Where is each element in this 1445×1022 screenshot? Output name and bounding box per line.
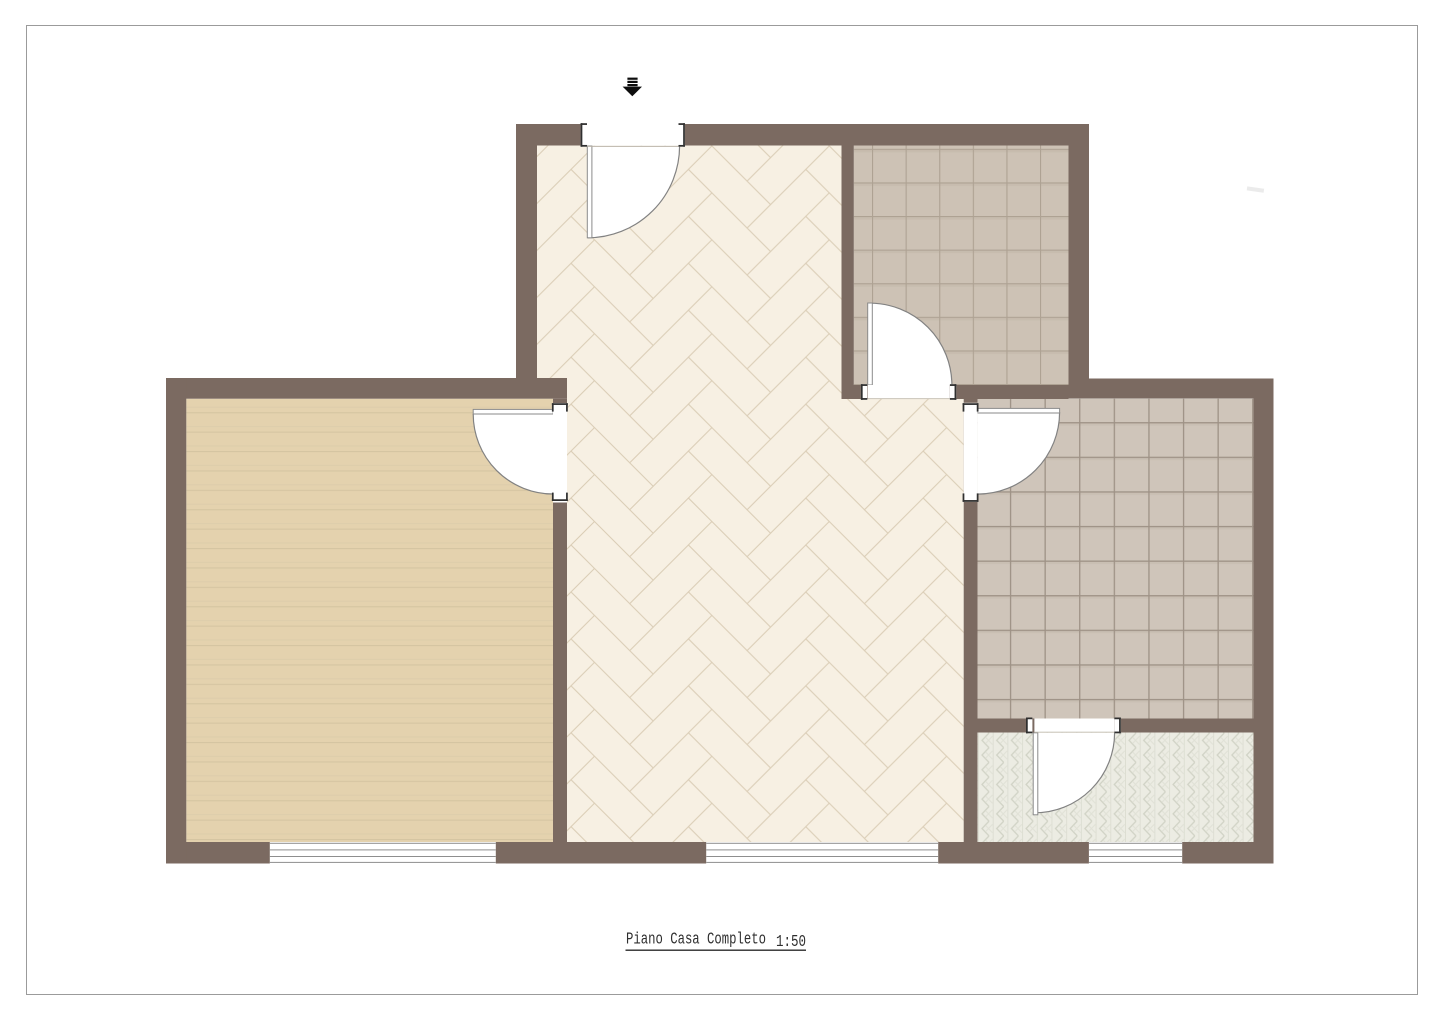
svg-text:Piano Casa Completo: Piano Casa Completo: [626, 930, 766, 949]
svg-text:1:50: 1:50: [776, 932, 806, 951]
